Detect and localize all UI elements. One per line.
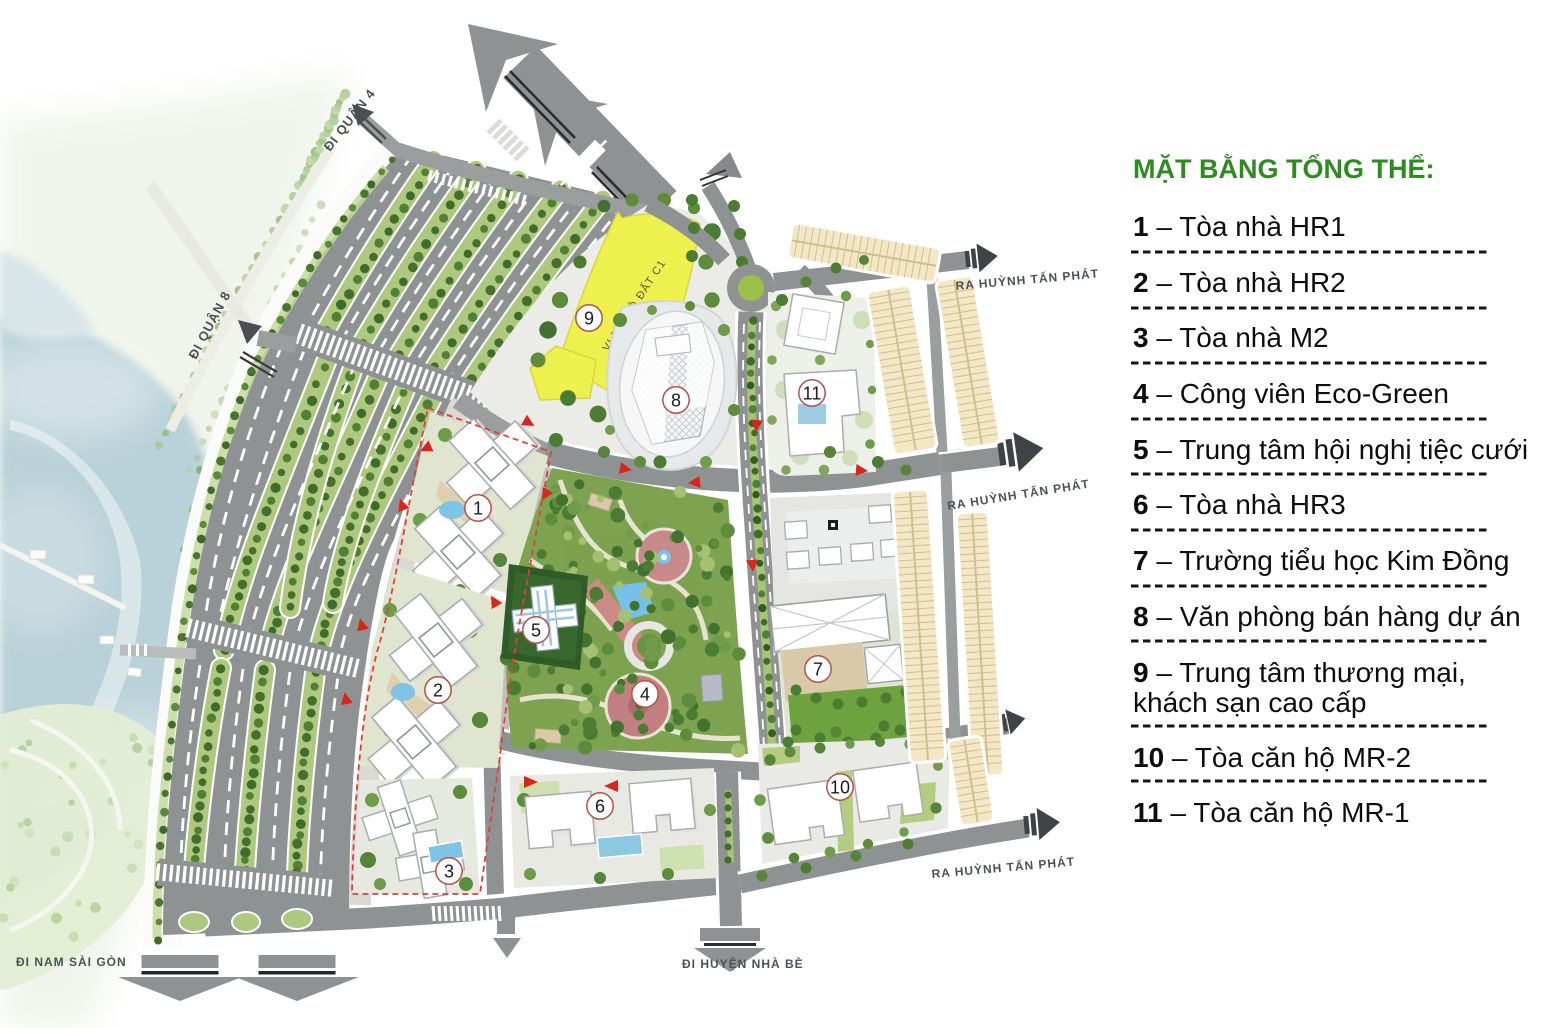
svg-text:2 – Tòa nhà HR2: 2 – Tòa nhà HR2 <box>1133 267 1346 298</box>
svg-text:ĐI HUYỆN NHÀ BÈ: ĐI HUYỆN NHÀ BÈ <box>682 956 804 971</box>
svg-text:4 – Công viên Eco-Green: 4 – Công viên Eco-Green <box>1133 378 1449 409</box>
svg-text:6: 6 <box>595 796 605 816</box>
svg-text:8 – Văn phòng bán hàng dự án: 8 – Văn phòng bán hàng dự án <box>1133 601 1521 632</box>
svg-text:MẶT BẰNG TỔNG THỂ:: MẶT BẰNG TỔNG THỂ: <box>1133 153 1434 184</box>
svg-text:9: 9 <box>584 308 594 328</box>
svg-text:ĐI NAM SÀI GÒN: ĐI NAM SÀI GÒN <box>16 954 127 969</box>
svg-text:3: 3 <box>444 861 454 881</box>
svg-text:7 – Trường tiểu học Kim Đồng: 7 – Trường tiểu học Kim Đồng <box>1133 545 1509 576</box>
svg-text:1 – Tòa nhà HR1: 1 – Tòa nhà HR1 <box>1133 211 1346 242</box>
svg-text:9 – Trung tâm thương mại,: 9 – Trung tâm thương mại, <box>1133 657 1466 688</box>
svg-text:2: 2 <box>433 680 443 700</box>
svg-text:4: 4 <box>640 684 650 704</box>
svg-text:1: 1 <box>473 498 483 518</box>
svg-text:6 – Tòa nhà HR3: 6 – Tòa nhà HR3 <box>1133 489 1346 520</box>
svg-text:10: 10 <box>830 777 850 797</box>
svg-text:11 – Tòa căn hộ MR-1: 11 – Tòa căn hộ MR-1 <box>1133 797 1410 828</box>
svg-text:5: 5 <box>531 620 541 640</box>
svg-text:5 – Trung tâm hội nghị tiệc cư: 5 – Trung tâm hội nghị tiệc cưới <box>1133 434 1528 465</box>
svg-text:khách sạn cao cấp: khách sạn cao cấp <box>1133 687 1367 718</box>
svg-text:3 – Tòa nhà M2: 3 – Tòa nhà M2 <box>1133 322 1329 353</box>
svg-text:7: 7 <box>813 659 823 679</box>
svg-text:8: 8 <box>671 390 681 410</box>
svg-text:11: 11 <box>803 383 822 403</box>
svg-text:10 – Tòa căn hộ MR-2: 10 – Tòa căn hộ MR-2 <box>1133 742 1411 773</box>
